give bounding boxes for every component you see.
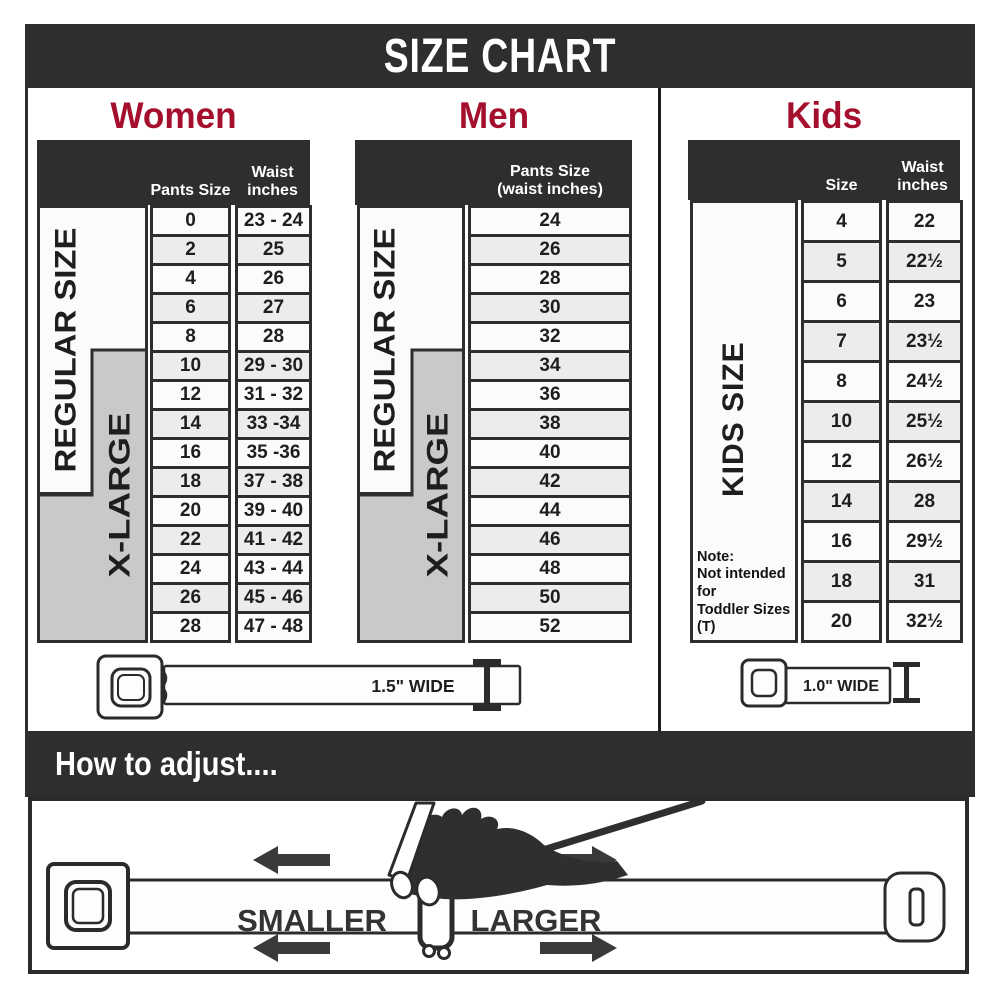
cell-size: 28 xyxy=(150,611,231,643)
kids-table-header: Size Waist inches xyxy=(688,140,960,200)
men-size-bands: REGULAR SIZE X-LARGE xyxy=(357,205,468,643)
table-row: 522½ xyxy=(801,240,963,283)
table-row: 32 xyxy=(468,321,632,353)
cell-size: 18 xyxy=(150,466,231,498)
cell-waist: 26 xyxy=(235,263,312,295)
cell-waist: 31 - 32 xyxy=(235,379,312,411)
smaller-arrow-bottom-icon xyxy=(253,934,330,962)
table-row: 24 xyxy=(468,205,632,237)
cell-value: 46 xyxy=(468,524,632,556)
table-row: 023 - 24 xyxy=(150,205,312,237)
cell-size: 8 xyxy=(150,321,231,353)
kids-col-waist: Waist inches xyxy=(885,159,960,195)
kids-belt-width-label: 1.0" WIDE xyxy=(803,678,879,695)
cell-waist: 28 xyxy=(235,321,312,353)
men-heading: Men xyxy=(355,94,632,138)
table-row: 824½ xyxy=(801,360,963,403)
cell-value: 52 xyxy=(468,611,632,643)
table-row: 38 xyxy=(468,408,632,440)
cell-waist: 37 - 38 xyxy=(235,466,312,498)
women-heading-label: Women xyxy=(110,94,236,138)
cell-size: 18 xyxy=(801,560,882,603)
table-row: 2847 - 48 xyxy=(150,611,312,643)
cell-size: 26 xyxy=(150,582,231,614)
table-row: 723½ xyxy=(801,320,963,363)
cell-value: 28 xyxy=(468,263,632,295)
cell-waist: 27 xyxy=(235,292,312,324)
table-row: 2032½ xyxy=(801,600,963,643)
table-row: 34 xyxy=(468,350,632,382)
kids-size-label: KIDS SIZE xyxy=(717,289,751,549)
table-row: 1428 xyxy=(801,480,963,523)
cell-waist: 23½ xyxy=(886,320,963,363)
cell-size: 16 xyxy=(801,520,882,563)
table-row: 28 xyxy=(468,263,632,295)
table-row: 48 xyxy=(468,553,632,585)
table-row: 2039 - 40 xyxy=(150,495,312,527)
women-xlarge-label: X-LARGE xyxy=(104,413,137,578)
cell-size: 16 xyxy=(150,437,231,469)
cell-size: 0 xyxy=(150,205,231,237)
kids-table-rows: 422522½623723½824½1025½1226½14281629½183… xyxy=(801,200,963,643)
table-row: 2241 - 42 xyxy=(150,524,312,556)
cell-size: 14 xyxy=(801,480,882,523)
cell-waist: 33 -34 xyxy=(235,408,312,440)
table-row: 1629½ xyxy=(801,520,963,563)
smaller-label: SMALLER xyxy=(237,903,387,938)
table-row: 44 xyxy=(468,495,632,527)
table-row: 422 xyxy=(801,200,963,243)
women-table-rows: 023 - 242254266278281029 - 301231 - 3214… xyxy=(150,205,312,643)
table-row: 627 xyxy=(150,292,312,324)
table-row: 30 xyxy=(468,292,632,324)
table-row: 1837 - 38 xyxy=(150,466,312,498)
adult-belt-width-label: 1.5" WIDE xyxy=(371,676,454,696)
table-row: 2443 - 44 xyxy=(150,553,312,585)
table-row: 36 xyxy=(468,379,632,411)
cell-waist: 29½ xyxy=(886,520,963,563)
cell-waist: 31 xyxy=(886,560,963,603)
adult-belt-strap xyxy=(164,666,520,704)
table-row: 40 xyxy=(468,437,632,469)
cell-size: 24 xyxy=(150,553,231,585)
table-row: 1635 -36 xyxy=(150,437,312,469)
cell-waist: 26½ xyxy=(886,440,963,483)
cell-waist: 23 xyxy=(886,280,963,323)
belt-tip-slot xyxy=(910,889,923,925)
table-row: 50 xyxy=(468,582,632,614)
table-row: 828 xyxy=(150,321,312,353)
cell-size: 6 xyxy=(801,280,882,323)
cell-waist: 39 - 40 xyxy=(235,495,312,527)
kids-col-size: Size xyxy=(801,177,882,195)
men-table-header: Pants Size (waist inches) xyxy=(355,140,632,205)
table-row: 1029 - 30 xyxy=(150,350,312,382)
cell-waist: 22 xyxy=(886,200,963,243)
men-table-rows: 242628303234363840424446485052 xyxy=(468,205,632,643)
larger-arrow-bottom-icon xyxy=(540,934,617,962)
adjuster-loop-left xyxy=(424,946,435,957)
men-regular-label: REGULAR SIZE xyxy=(369,228,402,473)
cell-size: 12 xyxy=(150,379,231,411)
cell-value: 36 xyxy=(468,379,632,411)
adult-belt-illustration: 1.5" WIDE xyxy=(92,650,524,726)
kids-note: Note: Not intended for Toddler Sizes (T) xyxy=(697,549,795,637)
table-row: 426 xyxy=(150,263,312,295)
how-to-adjust-bar: How to adjust.... xyxy=(25,731,975,797)
adjust-illustration: SMALLER LARGER xyxy=(32,801,965,970)
cell-size: 4 xyxy=(150,263,231,295)
cell-waist: 25 xyxy=(235,234,312,266)
cell-waist: 22½ xyxy=(886,240,963,283)
cell-value: 32 xyxy=(468,321,632,353)
cell-waist: 35 -36 xyxy=(235,437,312,469)
table-row: 1231 - 32 xyxy=(150,379,312,411)
how-to-adjust-heading: How to adjust.... xyxy=(55,745,278,783)
cell-size: 22 xyxy=(150,524,231,556)
cell-size: 20 xyxy=(150,495,231,527)
cell-value: 26 xyxy=(468,234,632,266)
cell-value: 30 xyxy=(468,292,632,324)
table-row: 42 xyxy=(468,466,632,498)
women-regular-label: REGULAR SIZE xyxy=(50,228,83,473)
kids-width-indicator-icon xyxy=(893,662,920,703)
cell-size: 4 xyxy=(801,200,882,243)
cell-size: 6 xyxy=(150,292,231,324)
cell-size: 5 xyxy=(801,240,882,283)
cell-waist: 47 - 48 xyxy=(235,611,312,643)
cell-waist: 24½ xyxy=(886,360,963,403)
larger-label: LARGER xyxy=(471,903,602,938)
cell-value: 42 xyxy=(468,466,632,498)
cell-size: 7 xyxy=(801,320,882,363)
cell-size: 14 xyxy=(150,408,231,440)
title-bar: SIZE CHART xyxy=(25,24,975,88)
cell-waist: 32½ xyxy=(886,600,963,643)
women-table-header: Pants Size Waist inches xyxy=(37,140,310,205)
men-col-pants-size: Pants Size (waist inches) xyxy=(468,163,632,199)
table-row: 1433 -34 xyxy=(150,408,312,440)
kids-belt-illustration: 1.0" WIDE xyxy=(738,654,924,710)
table-row: 26 xyxy=(468,234,632,266)
table-row: 1025½ xyxy=(801,400,963,443)
smaller-arrow-top-icon xyxy=(253,846,330,874)
cell-waist: 23 - 24 xyxy=(235,205,312,237)
adjust-seatbelt-buckle-icon xyxy=(48,864,128,948)
women-heading: Women xyxy=(37,94,310,138)
cell-value: 50 xyxy=(468,582,632,614)
cell-waist: 25½ xyxy=(886,400,963,443)
adjuster-loop-right xyxy=(439,948,450,959)
table-row: 2645 - 46 xyxy=(150,582,312,614)
cell-size: 10 xyxy=(150,350,231,382)
table-row: 1831 xyxy=(801,560,963,603)
cell-size: 10 xyxy=(801,400,882,443)
adult-seatbelt-buckle-icon xyxy=(98,656,162,718)
cell-size: 2 xyxy=(150,234,231,266)
cell-size: 20 xyxy=(801,600,882,643)
men-xlarge-label: X-LARGE xyxy=(422,413,455,578)
cell-waist: 43 - 44 xyxy=(235,553,312,585)
adjust-illustration-box: SMALLER LARGER xyxy=(28,797,969,974)
women-col-waist: Waist inches xyxy=(234,164,311,200)
table-row: 52 xyxy=(468,611,632,643)
men-heading-label: Men xyxy=(458,94,528,138)
cell-value: 40 xyxy=(468,437,632,469)
cell-value: 44 xyxy=(468,495,632,527)
size-chart-page: SIZE CHART Women Men Kids Pants Size Wai… xyxy=(0,0,1000,1000)
kids-seatbelt-buckle-icon xyxy=(742,660,786,706)
cell-size: 12 xyxy=(801,440,882,483)
cell-value: 34 xyxy=(468,350,632,382)
cell-waist: 28 xyxy=(886,480,963,523)
cell-size: 8 xyxy=(801,360,882,403)
page-title: SIZE CHART xyxy=(384,29,616,84)
cell-value: 48 xyxy=(468,553,632,585)
women-col-pants-size: Pants Size xyxy=(150,182,231,200)
table-row: 225 xyxy=(150,234,312,266)
panel-divider xyxy=(658,88,661,731)
kids-heading: Kids xyxy=(688,94,960,138)
women-size-bands: REGULAR SIZE X-LARGE xyxy=(37,205,151,643)
cell-waist: 45 - 46 xyxy=(235,582,312,614)
table-row: 46 xyxy=(468,524,632,556)
cell-waist: 41 - 42 xyxy=(235,524,312,556)
kids-size-band: KIDS SIZE Note: Not intended for Toddler… xyxy=(690,200,798,643)
cell-value: 38 xyxy=(468,408,632,440)
cell-waist: 29 - 30 xyxy=(235,350,312,382)
cell-value: 24 xyxy=(468,205,632,237)
kids-heading-label: Kids xyxy=(786,94,862,138)
table-row: 1226½ xyxy=(801,440,963,483)
table-row: 623 xyxy=(801,280,963,323)
